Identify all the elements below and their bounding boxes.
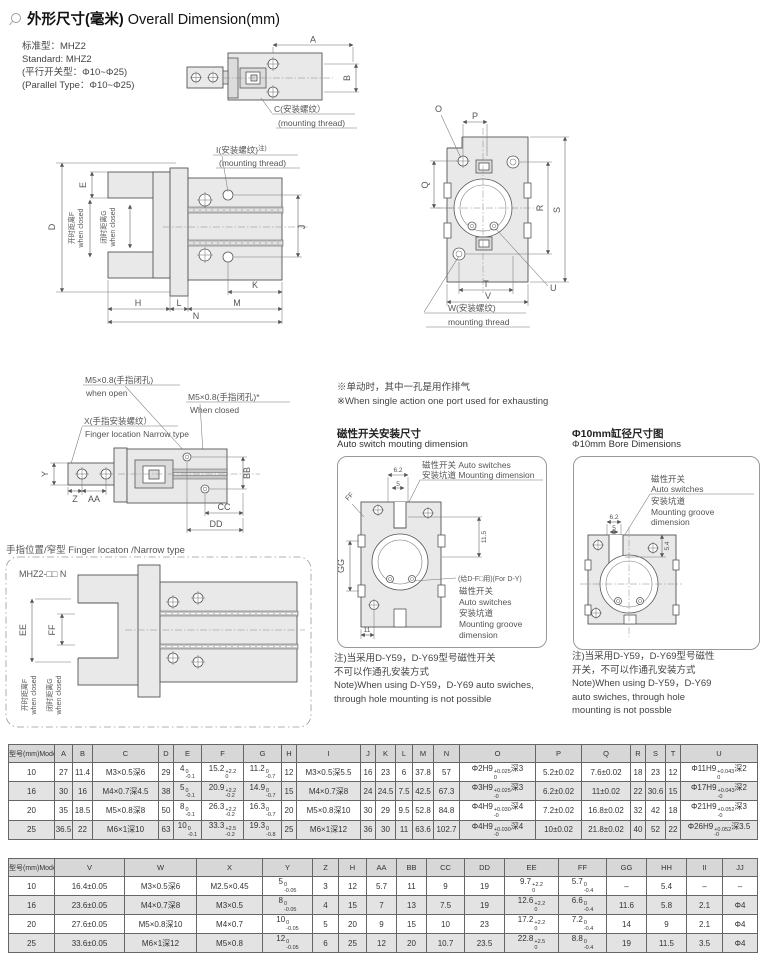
tolerance-stack: +2.20	[225, 770, 236, 781]
dim-b-label: B	[342, 75, 352, 81]
mount-thread-i-label-en: (mounting thread)	[219, 158, 286, 168]
table-cell: 14.90-0.7	[244, 782, 282, 801]
finger-mount-x-label: X(手指安装螺纹）	[84, 416, 152, 426]
table-cell: 7.20-0.4	[559, 915, 607, 934]
finger-section-en: Finger locaton /Narrow type	[66, 545, 185, 556]
bore-groove-note-2: Auto switches	[651, 484, 703, 494]
table-cell: 52.8	[413, 801, 434, 820]
table-cell: Φ26H9+0.052-0深3.5	[681, 820, 758, 839]
table-cell: 25	[9, 934, 55, 953]
drawing-side-view: O P Q R S T V U W(安装螺纹) mounting thread	[408, 98, 765, 348]
table-cell: 11.20-0.7	[244, 763, 282, 782]
column-header: R	[631, 745, 646, 763]
table-cell: 30.6	[646, 782, 666, 801]
text-line: 注)当采用D-Y59，D-Y69型号磁性	[572, 650, 715, 664]
table-cell: 11.4	[73, 763, 93, 782]
tolerance-stack: 0-0.7	[266, 789, 275, 800]
tolerance-stack: 0-0.7	[266, 770, 275, 781]
column-header: 型号(mm)Model	[9, 859, 55, 877]
tolerance-stack: 0-0.4	[584, 921, 593, 932]
table-cell: 20	[282, 801, 297, 820]
table-cell: 22.8+2.50	[505, 934, 559, 953]
table-cell: 9.7+2.20	[505, 877, 559, 896]
dim-5-label: 5	[396, 481, 400, 488]
table-cell: 4	[313, 896, 339, 915]
m5-closed-label: M5×0.8(手指闭孔)*	[188, 392, 260, 402]
table-cell: 80-0.1	[174, 801, 202, 820]
table-cell: 23.5	[465, 934, 505, 953]
table-cell: –	[607, 877, 647, 896]
mount-thread-w-label: W(安装螺纹)	[448, 303, 496, 313]
narrow-closed-g-label-en: when closed	[56, 675, 63, 715]
bore-groove-note-3: 安装坑道	[651, 496, 686, 506]
table-cell: 40	[631, 820, 646, 839]
column-header: B	[73, 745, 93, 763]
dim-h-label: H	[135, 298, 142, 308]
dim-e-label: E	[78, 182, 88, 188]
tolerance-stack: 0-0.8	[266, 827, 275, 838]
dim-11-5-label: 11.5	[481, 531, 488, 544]
table-cell: 16.30-0.7	[244, 801, 282, 820]
tolerance-stack: 0-0.7	[266, 808, 275, 819]
table-cell: 12.6+2.20	[505, 896, 559, 915]
table-cell: 10	[427, 915, 465, 934]
exhaust-note: ※单动时，其中一孔是用作排气※When single action one po…	[337, 381, 548, 408]
table-row: 1623.6±0.05M4×0.7深8M3×0.580-0.054157137.…	[9, 896, 758, 915]
table-cell: 38	[159, 782, 174, 801]
table-cell: 6.60-0.4	[559, 896, 607, 915]
text-line: through hole mounting is not possible	[334, 693, 534, 707]
table-cell: 5	[313, 915, 339, 934]
table-row: 2533.6±0.05M6×1深12M5×0.8120-0.0562512201…	[9, 934, 758, 953]
page-title: 外形尺寸(毫米) Overall Dimension(mm)	[8, 8, 280, 29]
column-header: GG	[607, 859, 647, 877]
table-cell: 12	[282, 763, 297, 782]
column-header: P	[536, 745, 582, 763]
column-header: G	[244, 745, 282, 763]
column-header: A	[55, 745, 73, 763]
table-cell: 23	[646, 763, 666, 782]
closed-distance-g-label: 闭时距离G	[99, 210, 108, 243]
tolerance-stack: 0-0.05	[286, 940, 299, 951]
table-cell: 5.4	[647, 877, 687, 896]
dim-z-label: Z	[72, 494, 78, 504]
table-cell: M3×0.5深6	[125, 877, 197, 896]
table-cell: 24	[361, 782, 376, 801]
dim-a-label: A	[310, 36, 316, 45]
table-cell: 3	[313, 877, 339, 896]
table-cell: –	[687, 877, 723, 896]
tolerance-stack: +2.20	[534, 902, 545, 913]
text-line: auto swiches, through hole	[572, 691, 715, 705]
table-cell: Φ4H9+0.030-0深4	[460, 820, 536, 839]
column-header: Q	[582, 745, 631, 763]
table-cell: 102.7	[434, 820, 460, 839]
tolerance-stack: +0.043-0	[718, 789, 735, 800]
table-cell: 42.5	[413, 782, 434, 801]
table-cell: 12	[367, 934, 397, 953]
tolerance-stack: 0-0.05	[284, 902, 297, 913]
table-cell: 63	[159, 820, 174, 839]
tolerance-stack: +2.2-0.2	[225, 808, 236, 819]
column-header: O	[460, 745, 536, 763]
tolerance-stack: 0-0.1	[185, 808, 194, 819]
table-cell: 100-0.1	[174, 820, 202, 839]
column-header: F	[202, 745, 244, 763]
column-header: S	[646, 745, 666, 763]
table-cell: 15.2+2.20	[202, 763, 244, 782]
dim-t-label: T	[483, 279, 489, 289]
column-header: EE	[505, 859, 559, 877]
dim-cc-label: CC	[218, 502, 231, 512]
table-cell: 27.6±0.05	[55, 915, 125, 934]
table-cell: 26.3+2.2-0.2	[202, 801, 244, 820]
data-table: 型号(mm)ModelABCDEFGHIJKLMNOPQRSTU102711.4…	[8, 744, 758, 840]
column-header: 型号(mm)Model	[9, 745, 55, 763]
drawing-bore-dimensions: 磁性开关 Auto switches 安装坑道 Mounting groove …	[573, 456, 760, 650]
bore-dim-5-4-label: 5.4	[664, 541, 671, 550]
table-cell: M5×0.8深8	[93, 801, 159, 820]
table-cell: 16	[9, 896, 55, 915]
text-line: Note)When using D-Y59，D-Y69 auto swiches…	[334, 679, 534, 693]
catalog-page: 外形尺寸(毫米) Overall Dimension(mm) 标准型：MHZ2S…	[0, 0, 765, 968]
text-line: 注)当采用D-Y59，D-Y69型号磁性开关	[334, 652, 534, 666]
table-cell: 10±0.02	[536, 820, 582, 839]
tolerance-stack: +0.0250	[494, 770, 511, 781]
table-cell: M5×0.8深10	[125, 915, 197, 934]
table-cell: 24.5	[376, 782, 396, 801]
mount-thread-c-label-en: (mounting thread)	[278, 118, 345, 128]
table-cell: 19	[607, 934, 647, 953]
dim-ee-label: EE	[18, 624, 28, 636]
table-cell: 57	[434, 763, 460, 782]
column-header: D	[159, 745, 174, 763]
table-cell: 67.3	[434, 782, 460, 801]
table-cell: 100-0.05	[263, 915, 313, 934]
mount-thread-c-label: C(安装螺纹）	[274, 104, 325, 114]
dim-d-label: D	[47, 223, 57, 230]
text-line: 不可以作通孔安装方式	[334, 666, 534, 680]
table-cell: 30	[361, 801, 376, 820]
groove-note-3: 安装坑道	[459, 608, 494, 618]
table-cell: 36.5	[55, 820, 73, 839]
table-cell: 21.8±0.02	[582, 820, 631, 839]
dim-gg-label: GG	[337, 559, 346, 573]
groove-note-5: dimension	[459, 630, 498, 640]
table-cell: M3×0.5深6	[93, 763, 159, 782]
table-cell: 20	[339, 915, 367, 934]
table-cell: M6×1深10	[93, 820, 159, 839]
table-cell: 25	[282, 820, 297, 839]
dim-s-label: S	[552, 207, 562, 213]
table-cell: 11	[396, 820, 413, 839]
table-cell: M6×1深12	[297, 820, 361, 839]
table-cell: 52	[646, 820, 666, 839]
table-cell: M3×0.5	[197, 896, 263, 915]
switch-groove-label-2: 安装坑道 Mounting dimension	[422, 470, 535, 480]
drawing-narrow-top-view: M5×0.8(手指闭孔) when open M5×0.8(手指闭孔)* Whe…	[30, 372, 332, 542]
table-cell: M4×0.7深8	[125, 896, 197, 915]
column-header: DD	[465, 859, 505, 877]
tolerance-stack: 0-0.1	[185, 789, 194, 800]
groove-note-4: Mounting groove	[459, 619, 523, 629]
column-header: X	[197, 859, 263, 877]
table-cell: 7.2±0.02	[536, 801, 582, 820]
table-cell: 22	[73, 820, 93, 839]
m5-open-label-en: when open	[85, 388, 128, 398]
table-cell: 50-0.05	[263, 877, 313, 896]
text-line: (Parallel Type：Φ10~Φ25)	[22, 79, 134, 92]
tolerance-stack: +0.052-0	[718, 808, 735, 819]
page-title-zh: 外形尺寸(毫米)	[27, 12, 124, 28]
table-cell: 25	[9, 820, 55, 839]
table-cell: 29	[376, 801, 396, 820]
table-cell: 19.30-0.8	[244, 820, 282, 839]
tolerance-stack: +2.20	[532, 883, 543, 894]
bore-groove-note-4: Mounting groove	[651, 507, 715, 517]
table-cell: 9.5	[396, 801, 413, 820]
dim-q-label: Q	[420, 181, 430, 188]
table-cell: 42	[646, 801, 666, 820]
table-cell: 27	[55, 763, 73, 782]
table-cell: 22	[631, 782, 646, 801]
narrow-model-label: MHZ2-□□ N	[19, 569, 66, 579]
table-cell: 20	[397, 934, 427, 953]
table-cell: 9	[427, 877, 465, 896]
table-cell: 16	[9, 782, 55, 801]
table-cell: 14	[607, 915, 647, 934]
table-cell: 5.8	[647, 896, 687, 915]
column-header: T	[666, 745, 681, 763]
tolerance-stack: +0.030-0	[494, 808, 511, 819]
dim-p-label: P	[472, 111, 478, 121]
tolerance-stack: +2.50	[534, 940, 545, 951]
column-header: II	[687, 859, 723, 877]
column-header: N	[434, 745, 460, 763]
table-cell: 20	[9, 801, 55, 820]
drawing-top-view: A B C(安装螺纹） (mounting thread)	[183, 36, 361, 136]
table-cell: 37.8	[413, 763, 434, 782]
table-cell: 36	[361, 820, 376, 839]
dimension-table-2: 型号(mm)ModelVWXYZHAABBCCDDEEFFGGHHIIJJ101…	[8, 858, 758, 953]
table-cell: 33.3+2.5-0.2	[202, 820, 244, 839]
table-cell: 18	[666, 801, 681, 820]
table-cell: 40-0.1	[174, 763, 202, 782]
dim-ff-label: FF	[47, 624, 57, 635]
table-row: 2536.522M6×1深1063100-0.133.3+2.5-0.219.3…	[9, 820, 758, 839]
table-cell: 16.8±0.02	[582, 801, 631, 820]
dim-v-label: V	[485, 291, 491, 301]
table-cell: 18	[631, 763, 646, 782]
closed-distance-g-label-en: when closed	[110, 207, 117, 247]
drawing-front-view: D E 开时距离F when closed 闭时距离G when closed …	[8, 128, 338, 343]
tolerance-stack: 0-0.05	[286, 921, 299, 932]
finger-section-zh: 手指位置/窄型	[6, 545, 66, 556]
column-header: W	[125, 859, 197, 877]
table-cell: 33.6±0.05	[55, 934, 125, 953]
column-header: K	[376, 745, 396, 763]
dim-6-2-label: 6.2	[393, 467, 402, 474]
table-cell: 23.6±0.05	[55, 896, 125, 915]
table-cell: 16	[73, 782, 93, 801]
mount-thread-i-label: I(安装螺纹)注)	[216, 143, 267, 155]
tolerance-stack: 0-0.05	[284, 883, 297, 894]
tolerance-stack: +2.2-0.2	[225, 789, 236, 800]
dim-l-label: L	[176, 298, 181, 308]
bore-dim-5-label: 5	[612, 525, 616, 532]
table-row: 163016M4×0.7深4.53850-0.120.9+2.2-0.214.9…	[9, 782, 758, 801]
m5-closed-label-en: When closed	[190, 405, 239, 415]
table-cell: 16	[361, 763, 376, 782]
dim-aa-label: AA	[88, 494, 100, 504]
text-line: Standard: MHZ2	[22, 53, 134, 66]
groove-note-2: Auto switches	[459, 597, 511, 607]
table-cell: Φ21H9+0.052-0深3	[681, 801, 758, 820]
column-header: FF	[559, 859, 607, 877]
table-cell: 19	[465, 896, 505, 915]
column-header: V	[55, 859, 125, 877]
for-dy-label: (给D-F□用)(For D-Y)	[458, 574, 522, 583]
table-cell: 16.4±0.05	[55, 877, 125, 896]
table-cell: 15	[339, 896, 367, 915]
table-cell: 8.80-0.4	[559, 934, 607, 953]
column-header: I	[297, 745, 361, 763]
dim-ff-diagonal-label: FF	[344, 491, 355, 502]
table-cell: M6×1深12	[125, 934, 197, 953]
text-line: 标准型：MHZ2	[22, 40, 134, 53]
table-cell: M3×0.5深5.5	[297, 763, 361, 782]
text-line: ※When single action one port used for ex…	[337, 395, 548, 409]
table-cell: M4×0.7	[197, 915, 263, 934]
tolerance-stack: 0-0.4	[584, 940, 593, 951]
bore-groove-note-1: 磁性开关	[651, 474, 686, 484]
table-cell: 5.7	[367, 877, 397, 896]
groove-note-1: 磁性开关	[459, 586, 494, 596]
table-cell: 12	[339, 877, 367, 896]
table-cell: 5.2±0.02	[536, 763, 582, 782]
table-cell: 11.5	[647, 934, 687, 953]
table-cell: 80-0.05	[263, 896, 313, 915]
table-cell: 18.5	[73, 801, 93, 820]
table-cell: 19	[465, 877, 505, 896]
table-cell: 12	[666, 763, 681, 782]
finger-section-header: 手指位置/窄型 Finger locaton /Narrow type	[6, 542, 185, 556]
bore-note: 注)当采用D-Y59，D-Y69型号磁性开关，不可以作通孔安装方式Note)Wh…	[572, 650, 715, 718]
text-line: mounting is not possble	[572, 704, 715, 718]
drawing-narrow-front-view: MHZ2-□□ N EE FF 开时距离F when closed 闭时距离G …	[5, 556, 312, 728]
page-title-en: Overall Dimension(mm)	[124, 12, 280, 28]
tolerance-stack: +2.5-0.2	[225, 827, 236, 838]
table-row: 2027.6±0.05M5×0.8深10M4×0.7100-0.05520915…	[9, 915, 758, 934]
tolerance-stack: +0.052-0	[714, 828, 731, 839]
dim-r-label: R	[535, 204, 545, 211]
tolerance-stack: 0-0.4	[584, 883, 593, 894]
column-header: AA	[367, 859, 397, 877]
table-cell: 30	[376, 820, 396, 839]
table-cell: M2.5×0.45	[197, 877, 263, 896]
narrow-open-f-label-en: when closed	[31, 675, 38, 715]
table-cell: M5×0.8深10	[297, 801, 361, 820]
dim-k-label: K	[252, 280, 258, 290]
column-header: H	[282, 745, 297, 763]
column-header: C	[93, 745, 159, 763]
table-cell: 7.5	[396, 782, 413, 801]
table-cell: 5.70-0.4	[559, 877, 607, 896]
table-cell: 15	[666, 782, 681, 801]
column-header: E	[174, 745, 202, 763]
column-header: Y	[263, 859, 313, 877]
dim-o-label: O	[435, 104, 442, 114]
table-cell: M5×0.8	[197, 934, 263, 953]
column-header: Z	[313, 859, 339, 877]
bore-dim-6-2-label: 6.2	[609, 514, 618, 521]
table-cell: 15	[397, 915, 427, 934]
table-cell: 25	[339, 934, 367, 953]
table-cell: M4×0.7深8	[297, 782, 361, 801]
switch-mount-section-title-en: Auto switch mouting dimension	[337, 439, 468, 450]
mount-thread-w-label-en: mounting thread	[448, 317, 510, 327]
table-cell: 13	[397, 896, 427, 915]
column-header: U	[681, 745, 758, 763]
column-header: CC	[427, 859, 465, 877]
table-cell: 120-0.05	[263, 934, 313, 953]
text-line: (平行开关型：Φ10~Φ25)	[22, 66, 134, 79]
table-cell: Φ2H9+0.0250深3	[460, 763, 536, 782]
switch-groove-label-1: 磁性开关 Auto switches	[422, 460, 511, 470]
column-header: J	[361, 745, 376, 763]
tolerance-stack: +0.025-0	[494, 789, 511, 800]
table-cell: 9	[647, 915, 687, 934]
column-header: HH	[647, 859, 687, 877]
column-header: H	[339, 859, 367, 877]
table-cell: 15	[282, 782, 297, 801]
table-cell: 9	[367, 915, 397, 934]
table-cell: 11±0.02	[582, 782, 631, 801]
table-cell: 22	[666, 820, 681, 839]
table-cell: Φ4	[723, 915, 758, 934]
table-cell: 10	[9, 763, 55, 782]
dim-j-label: J	[297, 225, 307, 230]
open-distance-f-label-en: when closed	[78, 208, 85, 248]
table-cell: 7.6±0.02	[582, 763, 631, 782]
text-line: ※单动时，其中一孔是用作排气	[337, 381, 548, 395]
table-cell: Φ11H9+0.0430深2	[681, 763, 758, 782]
dim-n-label: N	[193, 311, 200, 321]
switch-mount-note: 注)当采用D-Y59，D-Y69型号磁性开关不可以作通孔安装方式Note)Whe…	[334, 652, 534, 706]
standard-type-block: 标准型：MHZ2Standard: MHZ2(平行开关型：Φ10~Φ25)(Pa…	[22, 40, 134, 92]
table-cell: 84.8	[434, 801, 460, 820]
section-marker-icon	[8, 11, 23, 27]
table-cell: Φ17H9+0.043-0深2	[681, 782, 758, 801]
table-cell: 10.7	[427, 934, 465, 953]
table-cell: 6.2±0.02	[536, 782, 582, 801]
column-header: M	[413, 745, 434, 763]
table-cell: 50-0.1	[174, 782, 202, 801]
table-row: 102711.4M3×0.5深62940-0.115.2+2.2011.20-0…	[9, 763, 758, 782]
m5-open-label: M5×0.8(手指闭孔)	[85, 375, 153, 385]
dimension-table-1: 型号(mm)ModelABCDEFGHIJKLMNOPQRSTU102711.4…	[8, 744, 758, 840]
tolerance-stack: 0-0.1	[188, 827, 197, 838]
open-distance-f-label: 开时距离F	[67, 212, 76, 244]
dim-bb-label: BB	[242, 467, 252, 479]
table-cell: Φ4H9+0.030-0深4	[460, 801, 536, 820]
data-table: 型号(mm)ModelVWXYZHAABBCCDDEEFFGGHHIIJJ101…	[8, 858, 758, 953]
table-cell: 3.5	[687, 934, 723, 953]
table-cell: 23	[376, 763, 396, 782]
dim-y-label: Y	[40, 471, 50, 477]
tolerance-stack: +0.0430	[717, 770, 734, 781]
table-cell: 30	[55, 782, 73, 801]
